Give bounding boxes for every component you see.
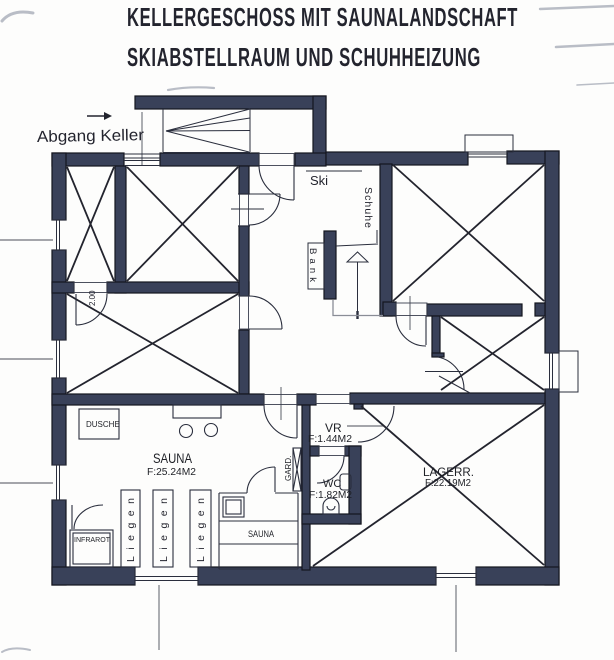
svg-text:Abgang Keller: Abgang Keller — [37, 127, 145, 146]
svg-text:SAUNA: SAUNA — [153, 450, 193, 466]
svg-text:WC: WC — [323, 478, 341, 490]
svg-text:SAUNA: SAUNA — [248, 529, 274, 539]
svg-text:F:25.24M2: F:25.24M2 — [147, 467, 196, 478]
svg-text:GARD.: GARD. — [284, 456, 293, 481]
svg-text:F:22.19M2: F:22.19M2 — [425, 478, 471, 489]
svg-text:SKIABSTELLRAUM UND SCHUHHEIZUN: SKIABSTELLRAUM UND SCHUHHEIZUNG — [127, 42, 481, 72]
svg-text:LAGERR.: LAGERR. — [423, 465, 474, 479]
svg-text:Schuhe: Schuhe — [362, 187, 374, 228]
svg-text:VR: VR — [325, 421, 342, 435]
svg-text:DUSCHE: DUSCHE — [86, 420, 120, 429]
svg-text:F:1.82M2: F:1.82M2 — [309, 490, 352, 501]
svg-text:F:1.44M2: F:1.44M2 — [308, 434, 352, 445]
svg-text:Ski: Ski — [310, 173, 328, 188]
svg-text:2.00: 2.00 — [88, 290, 97, 306]
svg-text:INFRAROT: INFRAROT — [74, 537, 111, 544]
svg-text:KELLERGESCHOSS MIT SAUNALANDSC: KELLERGESCHOSS MIT SAUNALANDSCHAFT — [127, 2, 518, 32]
